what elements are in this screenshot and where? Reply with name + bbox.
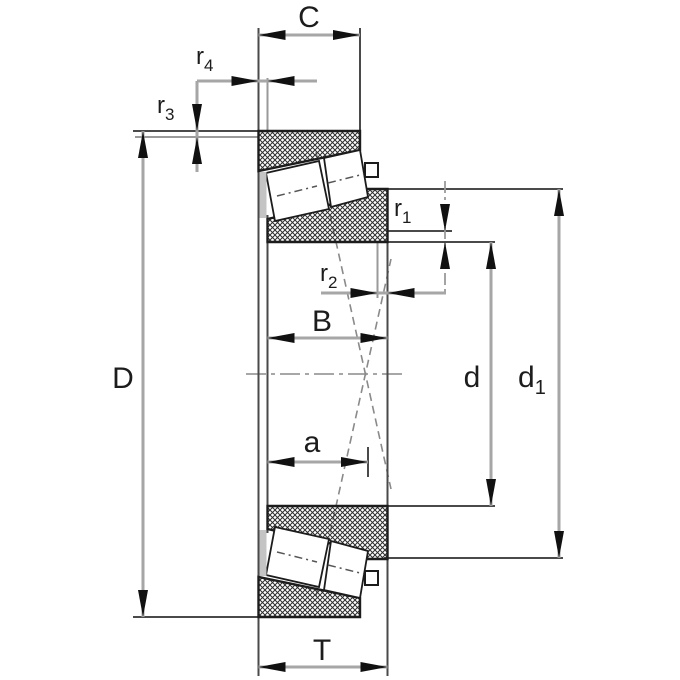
dim-label-r1: r1 bbox=[394, 195, 411, 227]
dim-label-r2: r2 bbox=[320, 260, 337, 292]
dimension-r1: r1 bbox=[394, 181, 450, 296]
dimension-r2: r2 bbox=[320, 260, 446, 298]
dim-label-d1: d1 bbox=[518, 361, 546, 399]
dim-label-D: D bbox=[112, 362, 134, 395]
dim-label-r3: r3 bbox=[157, 92, 174, 124]
dimension-B: B bbox=[268, 305, 388, 343]
dim-label-r4: r4 bbox=[196, 43, 213, 75]
dim-label-d: d bbox=[464, 361, 481, 394]
dimension-D: D bbox=[112, 131, 148, 617]
dim-label-C: C bbox=[298, 1, 320, 34]
cage-bar-section bbox=[365, 163, 378, 177]
dimension-d: d bbox=[464, 242, 496, 506]
dimension-C: C bbox=[259, 1, 361, 40]
bearing-drawing: C r4 r3 D r1 bbox=[0, 0, 680, 680]
cage-front-band bbox=[260, 172, 267, 218]
cage-bar-section bbox=[365, 571, 378, 585]
dimension-a: a bbox=[268, 426, 369, 467]
dim-label-T: T bbox=[313, 634, 331, 667]
dimension-T: T bbox=[259, 634, 388, 672]
dimension-r3: r3 bbox=[157, 92, 202, 164]
dim-label-a: a bbox=[304, 426, 321, 459]
technical-drawing-canvas: C r4 r3 D r1 bbox=[0, 0, 680, 680]
cage-front-band bbox=[260, 530, 267, 576]
dimension-d1: d1 bbox=[518, 189, 564, 558]
dim-label-B: B bbox=[312, 305, 332, 338]
